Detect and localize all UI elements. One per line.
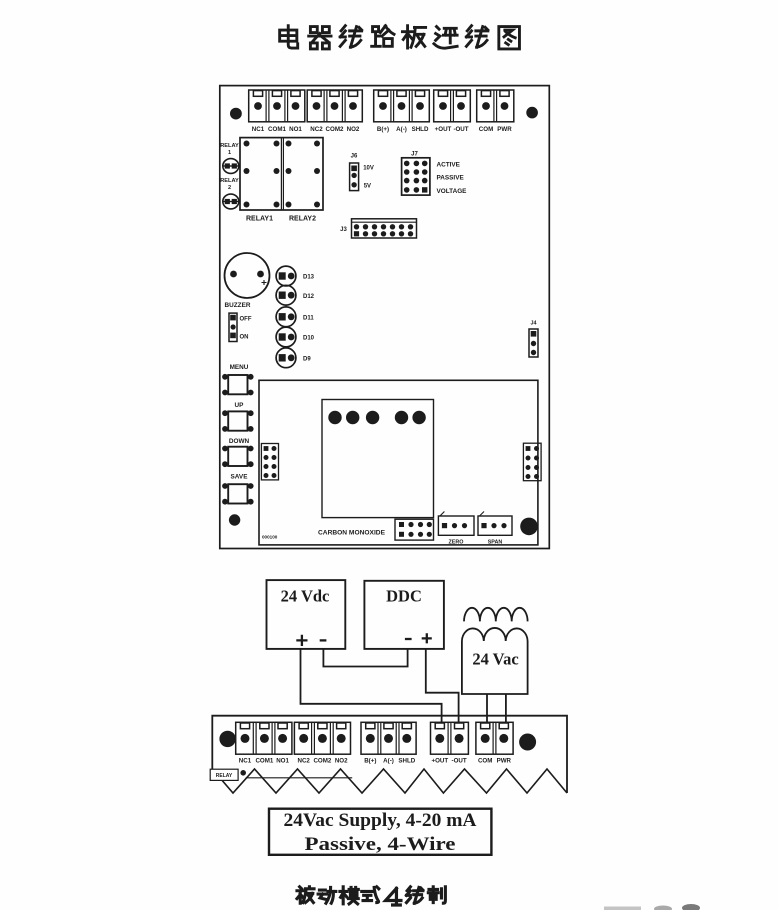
svg-text:SPAN: SPAN — [488, 540, 503, 546]
svg-text:NO1: NO1 — [276, 758, 289, 765]
svg-text:RELAY2: RELAY2 — [289, 216, 316, 223]
svg-text:RELAY1: RELAY1 — [246, 216, 273, 223]
svg-text:D9: D9 — [303, 356, 311, 362]
svg-text:DDC: DDC — [386, 587, 422, 606]
svg-text:+OUT: +OUT — [431, 758, 448, 765]
svg-text:D13: D13 — [303, 275, 315, 281]
svg-text:COM: COM — [478, 758, 492, 765]
svg-text:ACTIVE: ACTIVE — [437, 161, 461, 168]
svg-text:UP: UP — [235, 402, 245, 409]
svg-text:24Vac Supply, 4-20 mA: 24Vac Supply, 4-20 mA — [284, 810, 477, 831]
svg-text:COM2: COM2 — [326, 126, 344, 133]
svg-text:SHLD: SHLD — [412, 126, 429, 133]
svg-text:10V: 10V — [363, 165, 374, 171]
svg-text:MENU: MENU — [230, 364, 249, 371]
svg-text:1: 1 — [228, 150, 231, 156]
svg-text:-OUT: -OUT — [453, 126, 468, 133]
svg-text:5V: 5V — [364, 183, 371, 189]
svg-text:24 Vac: 24 Vac — [472, 650, 518, 669]
svg-text:D10: D10 — [303, 336, 315, 342]
svg-text:J7: J7 — [411, 152, 418, 158]
svg-text:B(+): B(+) — [364, 758, 376, 765]
svg-text:NO1: NO1 — [289, 126, 302, 133]
svg-text:J6: J6 — [351, 154, 358, 160]
svg-text:ON: ON — [240, 335, 249, 341]
svg-text:A(-): A(-) — [396, 126, 407, 133]
svg-text:J3: J3 — [340, 227, 347, 233]
svg-text:RELAY: RELAY — [220, 143, 239, 149]
svg-text:COM2: COM2 — [313, 758, 331, 765]
svg-text:NC1: NC1 — [239, 758, 252, 765]
svg-text:COM1: COM1 — [268, 126, 286, 133]
svg-text:BUZZER: BUZZER — [225, 302, 251, 309]
svg-text:NC1: NC1 — [252, 126, 265, 133]
svg-text:B(+): B(+) — [377, 126, 389, 133]
svg-text:+OUT: +OUT — [435, 126, 452, 133]
svg-text:SAVE: SAVE — [231, 474, 249, 481]
svg-text:D11: D11 — [303, 315, 314, 321]
svg-text:Passive, 4-Wire: Passive, 4-Wire — [305, 834, 456, 855]
svg-text:DOWN: DOWN — [229, 438, 250, 445]
svg-text:VOLTAGE: VOLTAGE — [437, 188, 468, 195]
svg-text:RELAY: RELAY — [216, 773, 233, 779]
svg-text:2: 2 — [228, 185, 231, 191]
svg-text:COM: COM — [479, 126, 493, 133]
svg-text:000100: 000100 — [262, 535, 278, 540]
svg-text:PWR: PWR — [497, 126, 512, 133]
svg-text:PASSIVE: PASSIVE — [437, 175, 465, 182]
svg-text:NO2: NO2 — [335, 758, 348, 765]
svg-text:J4: J4 — [531, 321, 537, 327]
svg-text:24 Vdc: 24 Vdc — [281, 587, 330, 606]
svg-text:A(-): A(-) — [383, 758, 394, 765]
svg-text:NC2: NC2 — [298, 758, 311, 765]
svg-text:NO2: NO2 — [347, 126, 360, 133]
svg-text:ZERO: ZERO — [449, 540, 464, 546]
svg-text:SHLD: SHLD — [398, 758, 415, 765]
svg-text:COM1: COM1 — [255, 758, 273, 765]
svg-text:RELAY: RELAY — [220, 178, 239, 184]
svg-text:PWR: PWR — [497, 758, 512, 765]
svg-text:D12: D12 — [303, 294, 315, 300]
svg-text:-OUT: -OUT — [452, 758, 467, 765]
svg-text:OFF: OFF — [240, 317, 252, 323]
svg-text:CARBON MONOXIDE: CARBON MONOXIDE — [318, 530, 386, 537]
svg-text:NC2: NC2 — [310, 126, 323, 133]
